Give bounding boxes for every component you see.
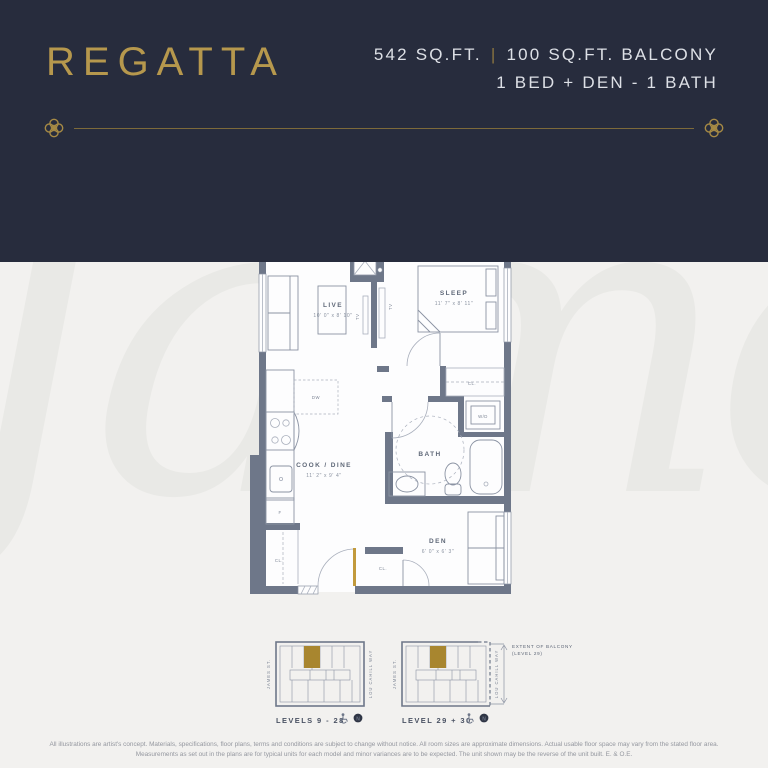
extent-note: (LEVEL 29) [512,651,543,656]
closet-label: CL. [379,566,387,571]
svg-text:N: N [482,716,486,722]
sleep-label: SLEEP [440,290,468,297]
unit-config: 1 BED + DEN - 1 BATH [374,74,718,91]
bath-label: BATH [418,451,441,458]
stat-divider: | [482,45,507,64]
tv-label: TV [355,314,360,321]
street-label-lou-cahill: LOU CAHILL WAY [494,650,499,699]
live-dims: 10' 0" x 8' 10" [313,313,352,319]
unit-stats: 542 SQ.FT.|100 SQ.FT. BALCONY 1 BED + DE… [374,46,718,91]
north-compass-icon: N [480,714,489,723]
tv-label: TV [388,304,393,311]
keyplan-caption: LEVEL 29 + 30 [402,716,472,725]
disclaimer-line-2: Measurements as set out in the plans are… [0,750,768,760]
unit-location-marker [304,646,320,668]
unit-location-marker [430,646,446,668]
clover-icon [704,118,724,138]
dishwasher-label: DW [312,395,321,400]
gold-rule-line [74,128,694,129]
project-name: REGATTA [46,40,285,85]
suite-area: 542 SQ.FT. [374,45,482,64]
closet-label: CL. [275,558,283,563]
closet-label: CL. [468,381,476,386]
entry-door-gold [353,548,356,586]
street-label-lou-cahill: LOU CAHILL WAY [368,650,373,699]
svg-text:N: N [356,716,360,722]
fridge-label: F [278,510,281,515]
north-compass-icon: N [354,714,363,723]
sleep-dims: 11' 7" x 8' 11" [435,301,473,307]
cook-dine-label: COOK / DINE [296,462,352,469]
extent-note: EXTENT OF BALCONY [512,644,573,649]
keyplan-caption: LEVELS 9 - 28 [276,716,345,725]
floorplan-sheet: James REGATTA 542 SQ.FT.|100 SQ.FT. BALC… [0,0,768,768]
den-dims: 6' 0" x 6' 3" [422,549,454,555]
clover-icon [44,118,64,138]
gold-divider [44,118,724,138]
live-label: LIVE [323,302,343,309]
washer-dryer-label: W/D [478,414,488,419]
disclaimer-line-1: All illustrations are artist's concept. … [0,740,768,750]
header-band: REGATTA 542 SQ.FT.|100 SQ.FT. BALCONY 1 … [0,0,768,262]
keyplan-levels-9-28: JAMES ST. LOU CAHILL WAY LEVELS 9 - 28 N [264,636,382,734]
keyplan-level-29-30: JAMES ST. LOU CAHILL WAY LEVEL 29 + 30 N… [390,636,640,734]
legal-disclaimer: All illustrations are artist's concept. … [0,740,768,760]
den-label: DEN [429,538,447,545]
street-label-james: JAMES ST. [266,659,271,689]
cook-dine-dims: 11' 2" x 9' 4" [306,473,341,479]
street-label-james: JAMES ST. [392,659,397,689]
unit-areas: 542 SQ.FT.|100 SQ.FT. BALCONY [374,46,718,63]
balcony-area: 100 SQ.FT. BALCONY [506,45,718,64]
